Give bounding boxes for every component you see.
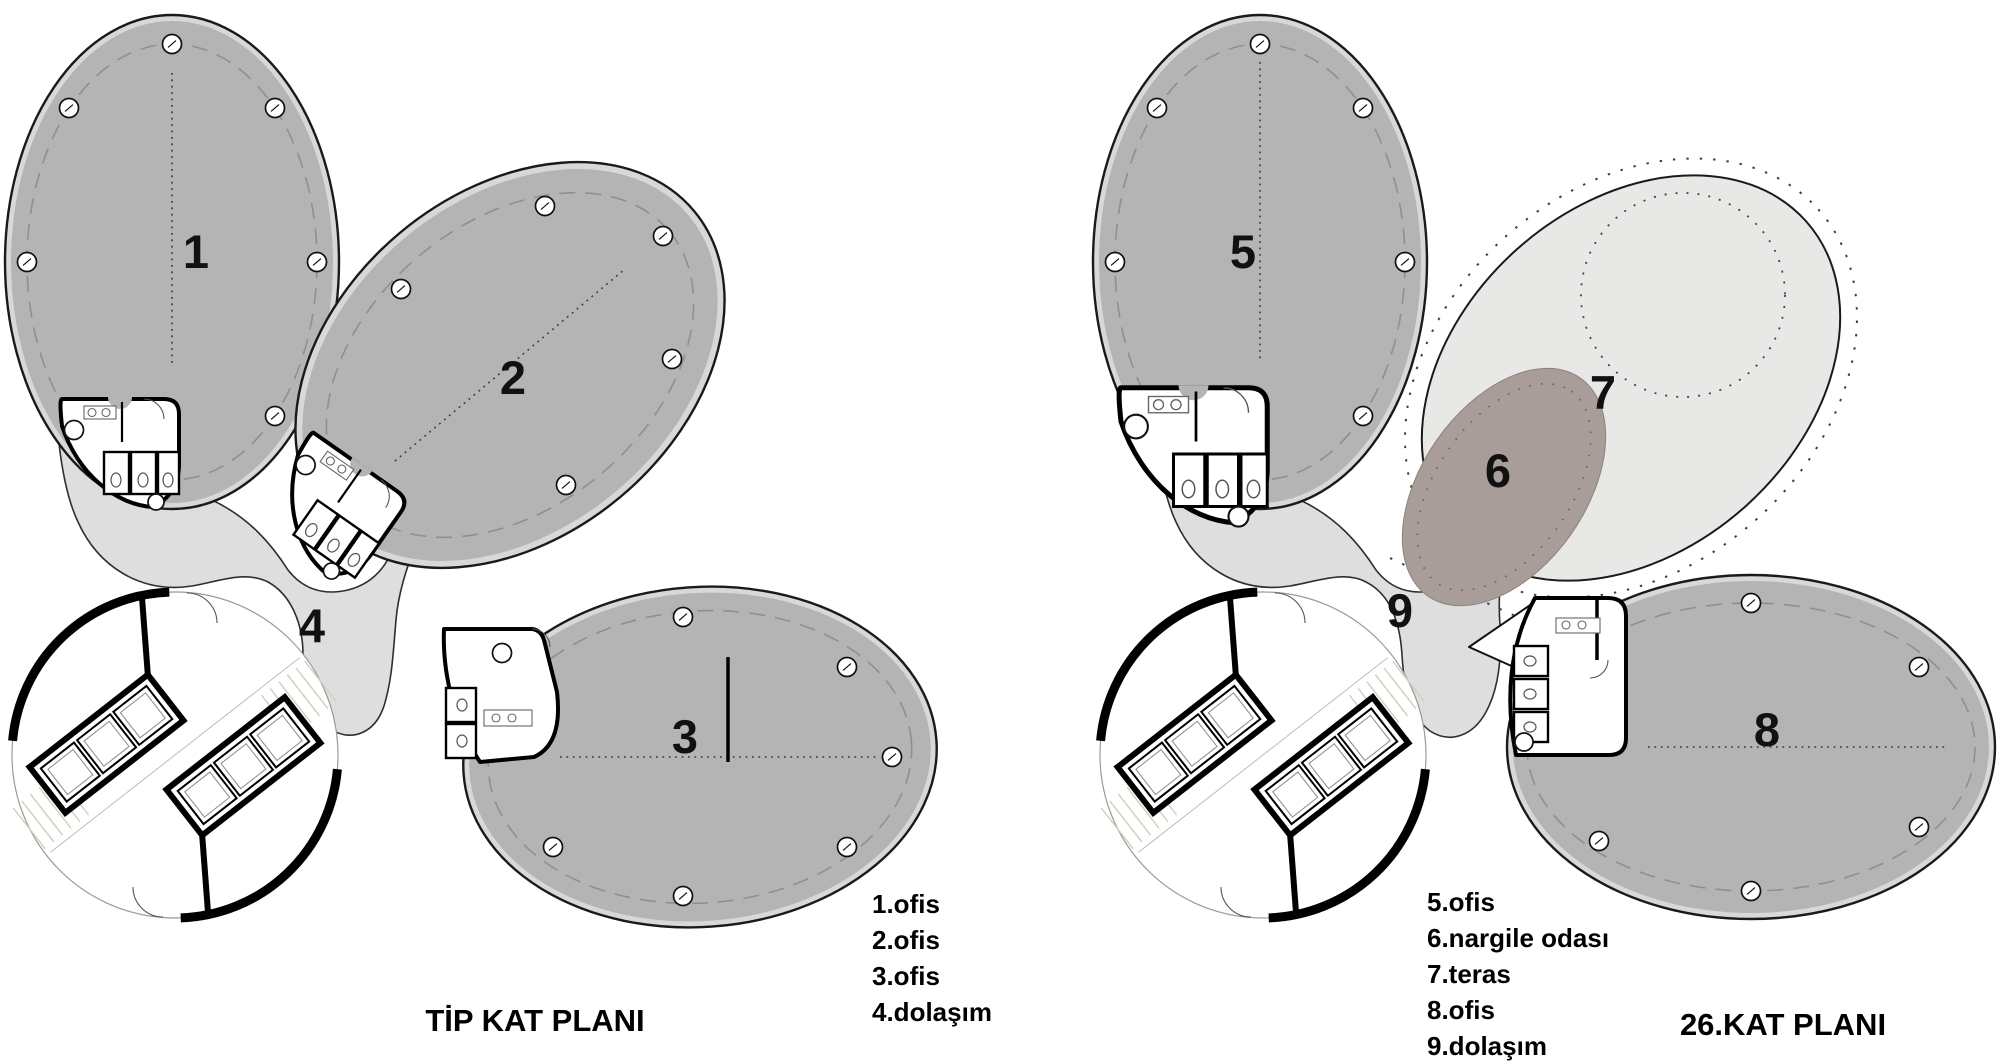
floor-plan-drawing: 1 2 3 4 <box>0 0 2000 1064</box>
column-icon <box>663 350 682 369</box>
column-icon <box>838 838 857 857</box>
legend-item: 6.nargile odası <box>1427 920 1609 956</box>
zone-label-7: 7 <box>1590 366 1616 419</box>
column-icon <box>1910 818 1929 837</box>
column-icon <box>654 227 673 246</box>
column-icon <box>557 476 576 495</box>
legend-item: 4.dolaşım <box>872 994 992 1030</box>
column-icon <box>674 887 693 906</box>
column-icon <box>1354 99 1373 118</box>
column-icon <box>18 253 37 272</box>
column-icon <box>674 608 693 627</box>
zone-label-9: 9 <box>1387 584 1413 637</box>
plan-typical: 1 2 3 4 <box>0 15 948 969</box>
legend-item: 5.ofis <box>1427 884 1609 920</box>
restroom-block <box>444 629 558 762</box>
legend-item: 9.dolaşım <box>1427 1028 1609 1064</box>
legend-item: 7.teras <box>1427 956 1609 992</box>
column-icon <box>1590 832 1609 851</box>
zone-label-8: 8 <box>1754 703 1780 756</box>
zone-label-5: 5 <box>1230 225 1256 278</box>
zone-label-1: 1 <box>183 225 209 278</box>
column-icon <box>308 253 327 272</box>
column-icon <box>163 35 182 54</box>
column-icon <box>1742 594 1761 613</box>
plan-title-26: 26.KAT PLANI <box>1628 1007 1938 1043</box>
zone-label-4: 4 <box>299 599 325 652</box>
zone-label-6: 6 <box>1485 444 1511 497</box>
plan-title-typical: TİP KAT PLANI <box>380 1003 690 1039</box>
column-icon <box>1251 35 1270 54</box>
column-icon <box>60 99 79 118</box>
column-icon <box>266 99 285 118</box>
floor-plans-sheet: 1 2 3 4 <box>0 0 2000 1064</box>
restroom-block <box>1510 598 1626 755</box>
legend-item: 8.ofis <box>1427 992 1609 1028</box>
zone-label-2: 2 <box>500 351 526 404</box>
legend-26: 5.ofis 6.nargile odası 7.teras 8.ofis 9.… <box>1427 884 1609 1064</box>
restroom-block <box>1119 385 1267 526</box>
column-icon <box>544 838 563 857</box>
column-icon <box>392 280 411 299</box>
legend-typical: 1.ofis 2.ofis 3.ofis 4.dolaşım <box>872 886 992 1030</box>
column-icon <box>1148 99 1167 118</box>
legend-item: 2.ofis <box>872 922 992 958</box>
column-icon <box>536 197 555 216</box>
column-icon <box>1354 407 1373 426</box>
column-icon <box>1742 882 1761 901</box>
plan-26: 5 6 7 8 9 <box>1047 15 1995 969</box>
legend-item: 3.ofis <box>872 958 992 994</box>
column-icon <box>1910 658 1929 677</box>
column-icon <box>883 748 902 767</box>
legend-item: 1.ofis <box>872 886 992 922</box>
zone-label-3: 3 <box>672 710 698 763</box>
column-icon <box>1396 253 1415 272</box>
column-icon <box>266 407 285 426</box>
column-icon <box>1106 253 1125 272</box>
column-icon <box>838 658 857 677</box>
